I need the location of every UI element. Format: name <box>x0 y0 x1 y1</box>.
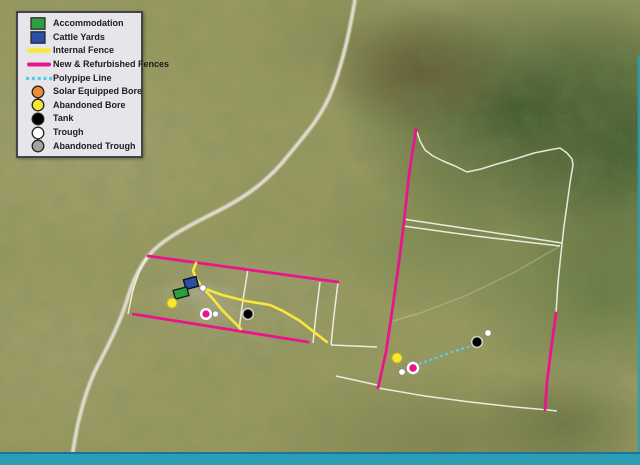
legend-item-solar-bore: Solar Equipped Bore <box>23 85 169 99</box>
footer-bar <box>0 454 640 465</box>
faint-track <box>393 246 560 321</box>
legend-item-internal-fence: Internal Fence <box>23 44 169 58</box>
white-fence <box>378 388 557 411</box>
abandoned-bore-marker <box>392 353 402 363</box>
bore-marker-pink <box>408 363 418 373</box>
trough-marker <box>200 285 207 292</box>
legend-label: Accommodation <box>53 19 124 28</box>
white-fence <box>403 226 560 246</box>
abandoned-bore-swatch-icon <box>23 98 53 112</box>
tank-marker <box>472 337 483 348</box>
legend-label: Internal Fence <box>53 46 114 55</box>
white-fence <box>417 132 573 244</box>
solar-bore-swatch-icon <box>23 85 53 99</box>
legend-label: Solar Equipped Bore <box>53 87 142 96</box>
pink-fence-vertical-left <box>378 129 416 388</box>
white-fence <box>556 244 562 313</box>
abandoned-trough-swatch-icon <box>23 139 53 153</box>
pink-fence-top <box>148 256 338 282</box>
legend-label: New & Refurbished Fences <box>53 60 169 69</box>
footer-bar-top-line <box>0 452 640 454</box>
accommodation-marker <box>173 287 189 299</box>
white-fence <box>403 219 562 243</box>
white-fence <box>331 282 338 345</box>
legend-label: Abandoned Bore <box>53 101 126 110</box>
internal-fences <box>193 263 327 342</box>
accommodation-swatch-icon <box>23 17 53 30</box>
legend-item-abandoned-trough: Abandoned Trough <box>23 139 169 153</box>
abandoned-bore-marker <box>167 298 177 308</box>
legend-label: Polypipe Line <box>53 74 112 83</box>
legend-item-trough: Trough <box>23 126 169 140</box>
map-screenshot: Accommodation Cattle Yards Internal Fenc… <box>0 0 640 465</box>
cattle-yards-swatch-icon <box>23 31 53 44</box>
polypipe-line <box>419 346 471 364</box>
new-refurbished-fences <box>133 129 556 410</box>
trough-marker <box>485 330 492 337</box>
legend-item-accommodation: Accommodation <box>23 17 169 31</box>
white-fence <box>336 376 377 385</box>
polypipe-swatch-icon <box>23 72 53 85</box>
legend-label: Trough <box>53 128 84 137</box>
trough-marker <box>212 311 218 317</box>
legend-item-new-fences: New & Refurbished Fences <box>23 58 169 72</box>
map-legend: Accommodation Cattle Yards Internal Fenc… <box>16 11 143 158</box>
legend-label: Tank <box>53 114 73 123</box>
white-fence <box>331 345 377 347</box>
internal-fence-swatch-icon <box>23 44 53 57</box>
legend-item-tank: Tank <box>23 112 169 126</box>
legend-item-cattle-yards: Cattle Yards <box>23 31 169 45</box>
legend-item-abandoned-bore: Abandoned Bore <box>23 99 169 113</box>
trough-marker <box>399 369 406 376</box>
trough-swatch-icon <box>23 126 53 140</box>
pink-fence-vertical-right <box>545 313 556 410</box>
legend-item-polypipe: Polypipe Line <box>23 71 169 85</box>
tank-marker <box>243 309 254 320</box>
pink-fence-bottom <box>133 314 308 342</box>
bore-marker-pink <box>201 309 211 319</box>
legend-label: Cattle Yards <box>53 33 105 42</box>
new-fences-swatch-icon <box>23 58 53 71</box>
tank-swatch-icon <box>23 112 53 126</box>
white-fences <box>128 132 573 411</box>
legend-label: Abandoned Trough <box>53 142 136 151</box>
